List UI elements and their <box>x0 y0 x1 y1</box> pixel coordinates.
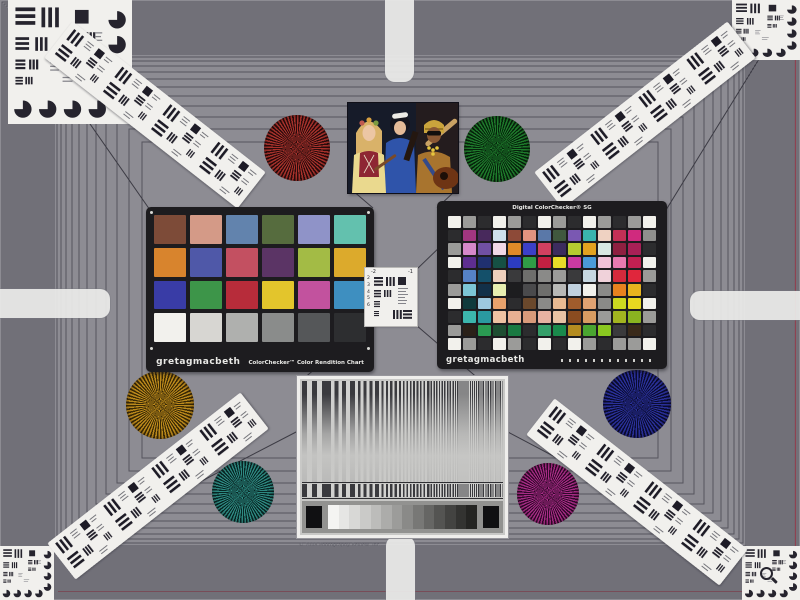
color-patch <box>568 257 581 269</box>
color-patch <box>463 216 476 228</box>
color-patch <box>523 216 536 228</box>
siemens-star-red <box>264 115 330 181</box>
color-patch <box>334 281 366 310</box>
color-patch <box>463 338 476 350</box>
color-patch <box>628 298 641 310</box>
sweep-fade-overlay <box>300 394 505 482</box>
color-patch <box>598 338 611 350</box>
color-patch <box>538 284 551 296</box>
color-patch <box>568 243 581 255</box>
siemens-star-magenta <box>517 463 579 525</box>
wedge-steps <box>328 505 477 529</box>
color-patch <box>613 325 626 337</box>
color-patch <box>613 338 626 350</box>
color-patch <box>508 298 521 310</box>
color-patch <box>628 325 641 337</box>
siemens-star-navy <box>603 370 671 438</box>
color-patch <box>493 298 506 310</box>
color-patch <box>568 284 581 296</box>
color-patch <box>493 311 506 323</box>
grayscale-step-wedge <box>302 501 503 533</box>
color-patch <box>493 338 506 350</box>
color-patch <box>190 281 222 310</box>
portrait-photo <box>348 103 458 193</box>
color-patch <box>478 230 491 242</box>
wedge-step <box>434 505 445 529</box>
divider-line <box>302 498 503 499</box>
sg-grid <box>448 216 656 350</box>
color-patch <box>523 257 536 269</box>
color-patch <box>226 248 258 277</box>
sg-title: Digital ColorChecker® SG <box>437 205 667 211</box>
color-patch <box>508 243 521 255</box>
color-patch <box>448 243 461 255</box>
wedge-step <box>445 505 456 529</box>
color-patch <box>298 215 330 244</box>
color-patch <box>493 216 506 228</box>
target-label: 2 <box>367 277 370 282</box>
locator-bar-right <box>690 291 800 320</box>
color-patch <box>643 284 656 296</box>
magnifier-icon <box>760 567 773 580</box>
color-patch <box>226 281 258 310</box>
color-patch <box>463 257 476 269</box>
color-patch <box>553 230 566 242</box>
color-patch <box>643 257 656 269</box>
color-patch <box>523 338 536 350</box>
color-patch <box>448 257 461 269</box>
color-patch <box>508 230 521 242</box>
color-patch <box>613 230 626 242</box>
wedge-end-black <box>306 506 322 528</box>
color-patch <box>463 284 476 296</box>
color-patch <box>643 311 656 323</box>
color-patch <box>226 313 258 342</box>
color-patch <box>493 284 506 296</box>
color-patch <box>628 230 641 242</box>
color-patch <box>568 230 581 242</box>
wedge-step <box>413 505 424 529</box>
color-patch <box>508 284 521 296</box>
color-patch <box>598 257 611 269</box>
color-patch <box>262 313 294 342</box>
target-label: -2 <box>371 269 376 275</box>
color-patch <box>613 270 626 282</box>
color-patch <box>643 230 656 242</box>
color-patch <box>598 284 611 296</box>
color-patch <box>583 257 596 269</box>
color-patch <box>628 257 641 269</box>
color-patch <box>538 298 551 310</box>
color-patch <box>463 325 476 337</box>
color-patch <box>493 270 506 282</box>
color-patch <box>598 216 611 228</box>
color-patch <box>583 338 596 350</box>
wedge-step <box>392 505 403 529</box>
color-patch <box>613 257 626 269</box>
color-patch <box>613 243 626 255</box>
color-patch <box>448 311 461 323</box>
wedge-end-black <box>483 506 499 528</box>
color-patch <box>523 243 536 255</box>
colorchecker-title: ColorChecker™ Color Rendition Chart <box>248 360 363 366</box>
camera-test-chart-scene: gretagmacbeth ColorChecker™ Color Rendit… <box>0 0 800 600</box>
color-patch <box>508 257 521 269</box>
usaf-target-center: -2-1 23456 <box>365 268 417 326</box>
wedge-step <box>402 505 413 529</box>
color-patch <box>262 281 294 310</box>
color-patch <box>523 270 536 282</box>
siemens-star-gold <box>126 371 194 439</box>
color-patch <box>583 284 596 296</box>
color-patch <box>643 216 656 228</box>
color-patch <box>262 215 294 244</box>
target-label: -1 <box>408 269 413 275</box>
color-patch <box>478 216 491 228</box>
wedge-step <box>328 505 339 529</box>
siemens-star-teal <box>212 461 274 523</box>
registration-tick <box>150 347 153 350</box>
color-patch <box>463 230 476 242</box>
color-patch <box>598 270 611 282</box>
usaf-target-bottom-left <box>0 546 54 600</box>
color-patch <box>463 243 476 255</box>
color-patch <box>583 270 596 282</box>
center-target-top-labels: -2-1 <box>371 269 413 275</box>
color-patch <box>598 230 611 242</box>
color-patch <box>154 313 186 342</box>
color-patch <box>583 243 596 255</box>
color-patch <box>643 338 656 350</box>
color-patch <box>613 311 626 323</box>
wedge-step <box>466 505 477 529</box>
color-patch <box>262 248 294 277</box>
color-patch <box>493 325 506 337</box>
colorchecker-sg-chart: Digital ColorChecker® SG gretagmacbeth <box>437 201 667 369</box>
color-patch <box>553 325 566 337</box>
locator-bar-top <box>385 0 414 82</box>
color-patch <box>298 248 330 277</box>
color-patch <box>568 311 581 323</box>
color-patch <box>553 338 566 350</box>
registration-tick <box>367 211 370 214</box>
color-patch <box>448 325 461 337</box>
color-patch <box>553 243 566 255</box>
chirp-bars-top <box>302 381 503 394</box>
color-patch <box>568 270 581 282</box>
target-label: 6 <box>367 304 370 309</box>
color-patch <box>508 270 521 282</box>
color-patch <box>190 248 222 277</box>
color-patch <box>628 338 641 350</box>
wedge-step <box>349 505 360 529</box>
color-patch <box>190 313 222 342</box>
color-patch <box>553 270 566 282</box>
color-patch <box>628 243 641 255</box>
color-patch <box>523 311 536 323</box>
sg-scale-ticks <box>561 359 653 362</box>
wedge-step <box>360 505 371 529</box>
color-patch <box>568 216 581 228</box>
color-patch <box>493 230 506 242</box>
color-patch <box>538 338 551 350</box>
color-patch <box>583 216 596 228</box>
color-patch <box>478 257 491 269</box>
color-patch <box>508 338 521 350</box>
color-patch <box>538 257 551 269</box>
target-label: 3 <box>367 284 370 289</box>
color-patch <box>334 215 366 244</box>
color-patch <box>538 243 551 255</box>
color-patch <box>613 216 626 228</box>
color-patch <box>583 325 596 337</box>
colorchecker-caption: gretagmacbeth ColorChecker™ Color Rendit… <box>146 357 374 367</box>
color-patch <box>523 325 536 337</box>
color-patch <box>538 311 551 323</box>
color-patch <box>298 281 330 310</box>
wedge-step <box>424 505 435 529</box>
color-patch <box>478 298 491 310</box>
color-patch <box>643 243 656 255</box>
color-patch <box>478 338 491 350</box>
color-patch <box>478 270 491 282</box>
color-patch <box>448 284 461 296</box>
divider-line <box>302 482 503 483</box>
color-patch <box>226 215 258 244</box>
color-patch <box>478 325 491 337</box>
color-patch <box>583 311 596 323</box>
color-patch <box>538 230 551 242</box>
color-patch <box>538 216 551 228</box>
color-patch <box>523 230 536 242</box>
color-patch <box>568 298 581 310</box>
colorchecker-grid <box>154 215 366 342</box>
color-patch <box>553 284 566 296</box>
color-patch <box>508 216 521 228</box>
color-patch <box>538 325 551 337</box>
color-patch <box>463 298 476 310</box>
wedge-step <box>381 505 392 529</box>
color-patch <box>493 257 506 269</box>
color-patch <box>190 215 222 244</box>
color-patch <box>478 243 491 255</box>
color-patch <box>553 216 566 228</box>
color-patch <box>643 298 656 310</box>
chirp-bars-bottom <box>302 484 503 497</box>
color-patch <box>478 284 491 296</box>
color-patch <box>154 215 186 244</box>
color-patch <box>643 325 656 337</box>
wedge-step <box>339 505 350 529</box>
color-patch <box>448 298 461 310</box>
color-patch <box>508 311 521 323</box>
color-patch <box>334 313 366 342</box>
color-patch <box>628 270 641 282</box>
locator-bar-left <box>0 289 110 318</box>
colorchecker-brand: gretagmacbeth <box>156 357 240 367</box>
color-patch <box>613 298 626 310</box>
wedge-step <box>456 505 467 529</box>
color-patch <box>598 243 611 255</box>
colorchecker-classic-chart: gretagmacbeth ColorChecker™ Color Rendit… <box>146 207 374 372</box>
color-patch <box>583 298 596 310</box>
color-patch <box>463 270 476 282</box>
target-label: 5 <box>367 297 370 302</box>
color-patch <box>568 338 581 350</box>
color-patch <box>553 298 566 310</box>
color-patch <box>448 270 461 282</box>
color-patch <box>553 311 566 323</box>
color-patch <box>298 313 330 342</box>
registration-tick <box>150 211 153 214</box>
center-target-left-labels: 23456 <box>367 277 370 309</box>
color-patch <box>508 325 521 337</box>
color-patch <box>598 298 611 310</box>
color-patch <box>154 248 186 277</box>
color-patch <box>598 325 611 337</box>
color-patch <box>448 216 461 228</box>
copyright-caption: © 2008 Photography Review, Inc. <box>299 543 381 548</box>
resolution-sweep-chart <box>297 376 508 538</box>
color-patch <box>643 270 656 282</box>
color-patch <box>628 216 641 228</box>
siemens-star-green <box>464 116 530 182</box>
color-patch <box>448 230 461 242</box>
sg-brand: gretagmacbeth <box>446 355 525 365</box>
color-patch <box>538 270 551 282</box>
color-patch <box>523 284 536 296</box>
color-patch <box>493 243 506 255</box>
color-patch <box>598 311 611 323</box>
color-patch <box>568 325 581 337</box>
color-patch <box>448 338 461 350</box>
locator-bar-bottom <box>386 536 415 600</box>
color-patch <box>553 257 566 269</box>
color-patch <box>463 311 476 323</box>
color-patch <box>583 230 596 242</box>
color-patch <box>628 284 641 296</box>
registration-tick <box>367 347 370 350</box>
color-patch <box>334 248 366 277</box>
color-patch <box>628 311 641 323</box>
color-patch <box>478 311 491 323</box>
color-patch <box>613 284 626 296</box>
color-patch <box>154 281 186 310</box>
wedge-step <box>371 505 382 529</box>
color-patch <box>523 298 536 310</box>
center-target-bars <box>365 268 417 326</box>
target-label: 4 <box>367 291 370 296</box>
